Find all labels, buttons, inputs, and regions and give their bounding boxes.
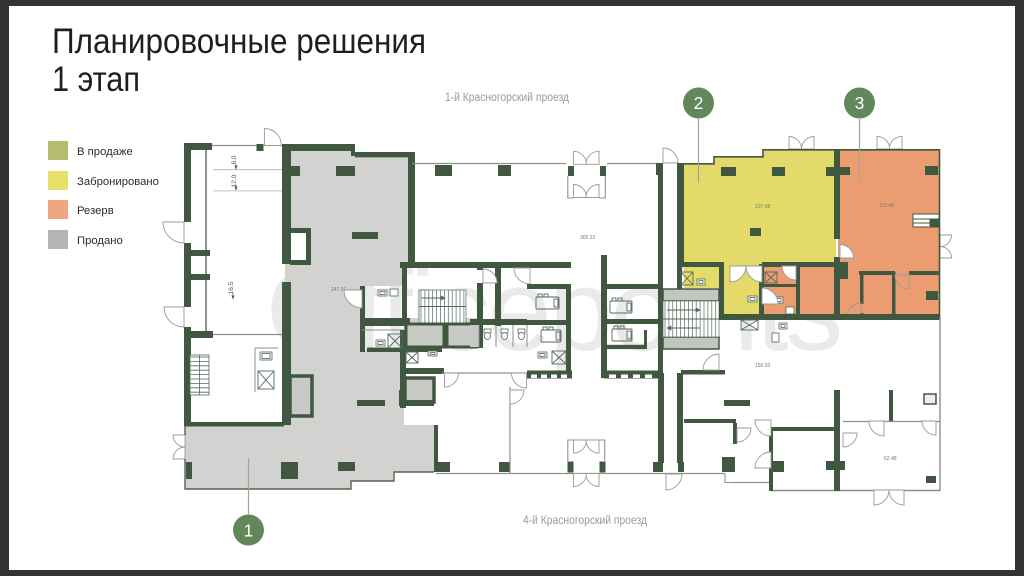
svg-text:62.48: 62.48 bbox=[884, 456, 897, 462]
svg-text:Продано: Продано bbox=[77, 235, 123, 247]
svg-text:365.22: 365.22 bbox=[580, 235, 596, 241]
svg-text:113.49: 113.49 bbox=[879, 203, 894, 209]
svg-text:2: 2 bbox=[694, 93, 704, 113]
svg-text:Забронировано: Забронировано bbox=[77, 176, 159, 188]
svg-text:12,0: 12,0 bbox=[231, 174, 238, 187]
svg-text:В продаже: В продаже bbox=[77, 146, 133, 158]
svg-text:156.03: 156.03 bbox=[755, 363, 771, 369]
svg-text:1 этап: 1 этап bbox=[52, 60, 140, 99]
svg-text:6,0: 6,0 bbox=[231, 155, 238, 164]
svg-text:1: 1 bbox=[244, 521, 254, 541]
svg-text:16,5: 16,5 bbox=[228, 281, 235, 294]
svg-text:1-й Красногорский проезд: 1-й Красногорский проезд bbox=[445, 92, 569, 104]
svg-text:Резерв: Резерв bbox=[77, 205, 114, 217]
svg-text:4-й Красногорский проезд: 4-й Красногорский проезд bbox=[523, 515, 647, 527]
svg-text:Планировочные решения: Планировочные решения bbox=[52, 22, 426, 61]
svg-text:3: 3 bbox=[855, 93, 865, 113]
svg-text:107.98: 107.98 bbox=[755, 204, 771, 210]
